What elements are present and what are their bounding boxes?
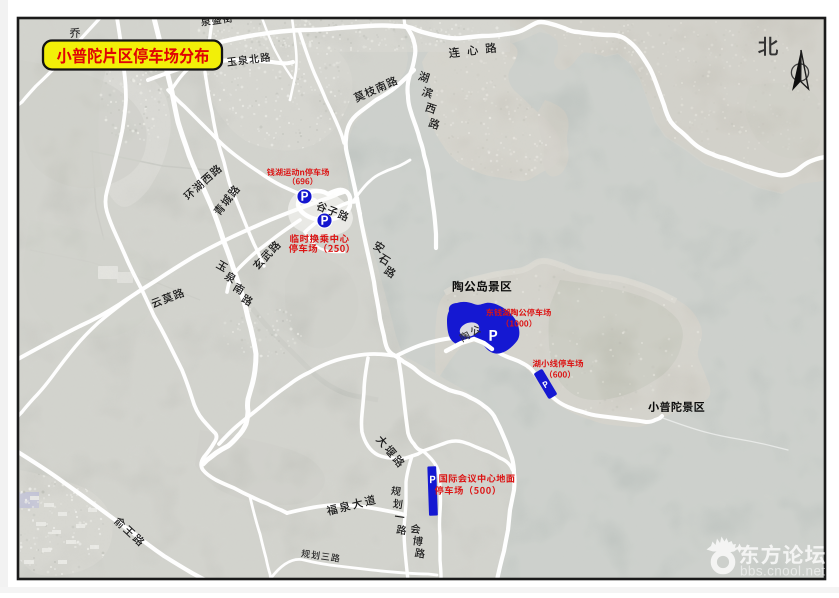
svg-text:bbs.cnool.net: bbs.cnool.net <box>740 564 826 579</box>
